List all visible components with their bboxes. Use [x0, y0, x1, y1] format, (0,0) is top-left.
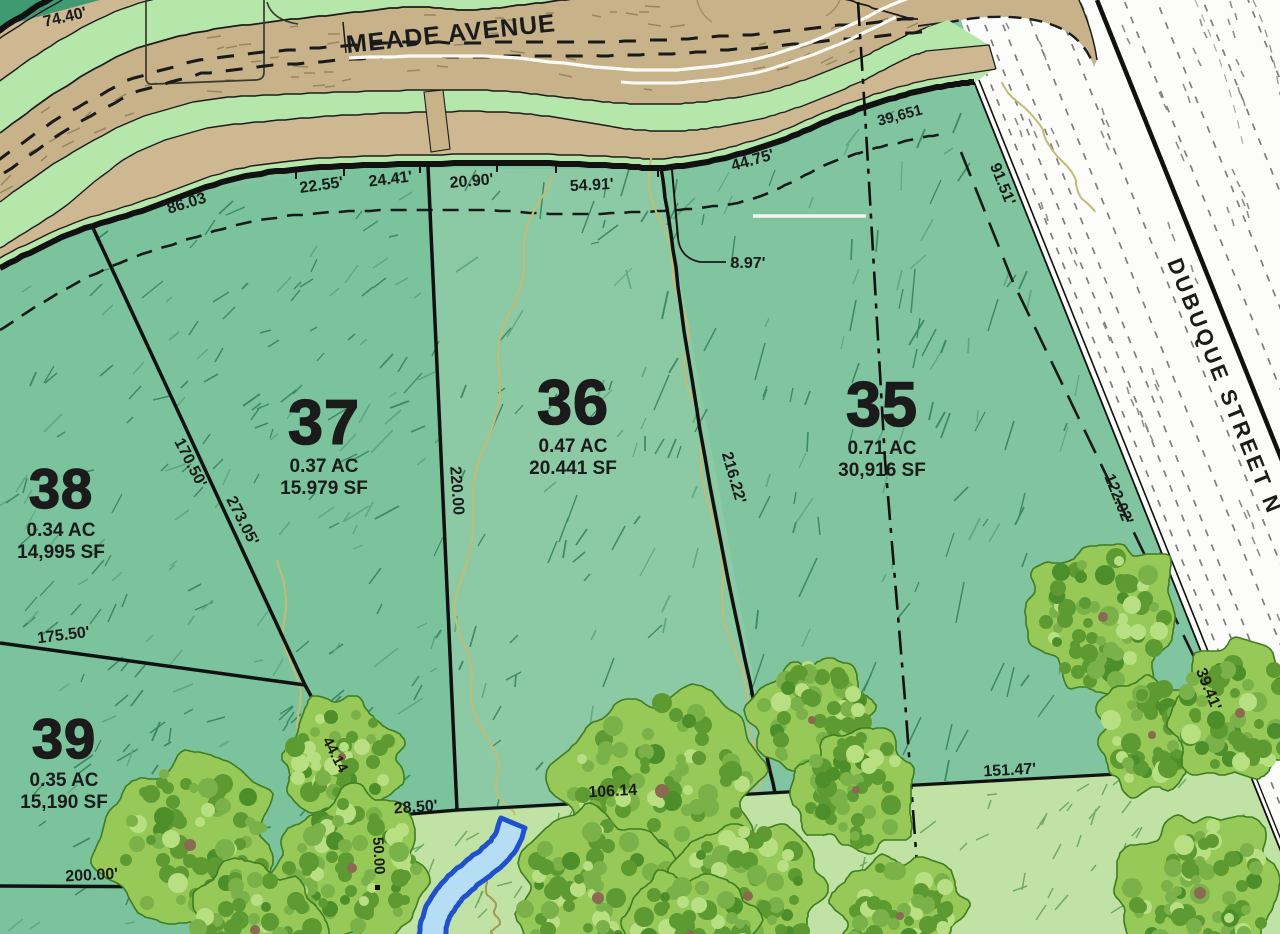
svg-text:20.441 SF: 20.441 SF — [529, 458, 617, 479]
svg-text:38: 38 — [29, 457, 93, 520]
svg-text:0.35 AC: 0.35 AC — [30, 770, 99, 791]
svg-text:39: 39 — [32, 707, 96, 770]
svg-text:37: 37 — [288, 388, 360, 458]
svg-text:36: 36 — [537, 368, 609, 438]
svg-text:0.71 AC: 0.71 AC — [848, 438, 917, 459]
svg-text:30,916 SF: 30,916 SF — [838, 460, 926, 481]
svg-text:200.00': 200.00' — [65, 866, 119, 886]
svg-text:15,190 SF: 15,190 SF — [20, 792, 108, 813]
svg-text:151.47': 151.47' — [983, 761, 1037, 781]
svg-text:14,995 SF: 14,995 SF — [17, 542, 105, 563]
svg-text:0.37 AC: 0.37 AC — [290, 456, 359, 477]
svg-text:50.00: 50.00 — [369, 837, 388, 875]
svg-text:106.14: 106.14 — [588, 782, 638, 802]
svg-text:0.34 AC: 0.34 AC — [27, 520, 96, 541]
svg-text:15.979 SF: 15.979 SF — [280, 478, 368, 499]
svg-text:8.97': 8.97' — [731, 255, 766, 272]
svg-text:54.91': 54.91' — [569, 176, 614, 195]
svg-text:0.47 AC: 0.47 AC — [539, 436, 608, 457]
svg-text:35: 35 — [846, 370, 918, 440]
svg-text:220.00: 220.00 — [446, 466, 466, 516]
svg-text:28.50': 28.50' — [393, 798, 438, 818]
